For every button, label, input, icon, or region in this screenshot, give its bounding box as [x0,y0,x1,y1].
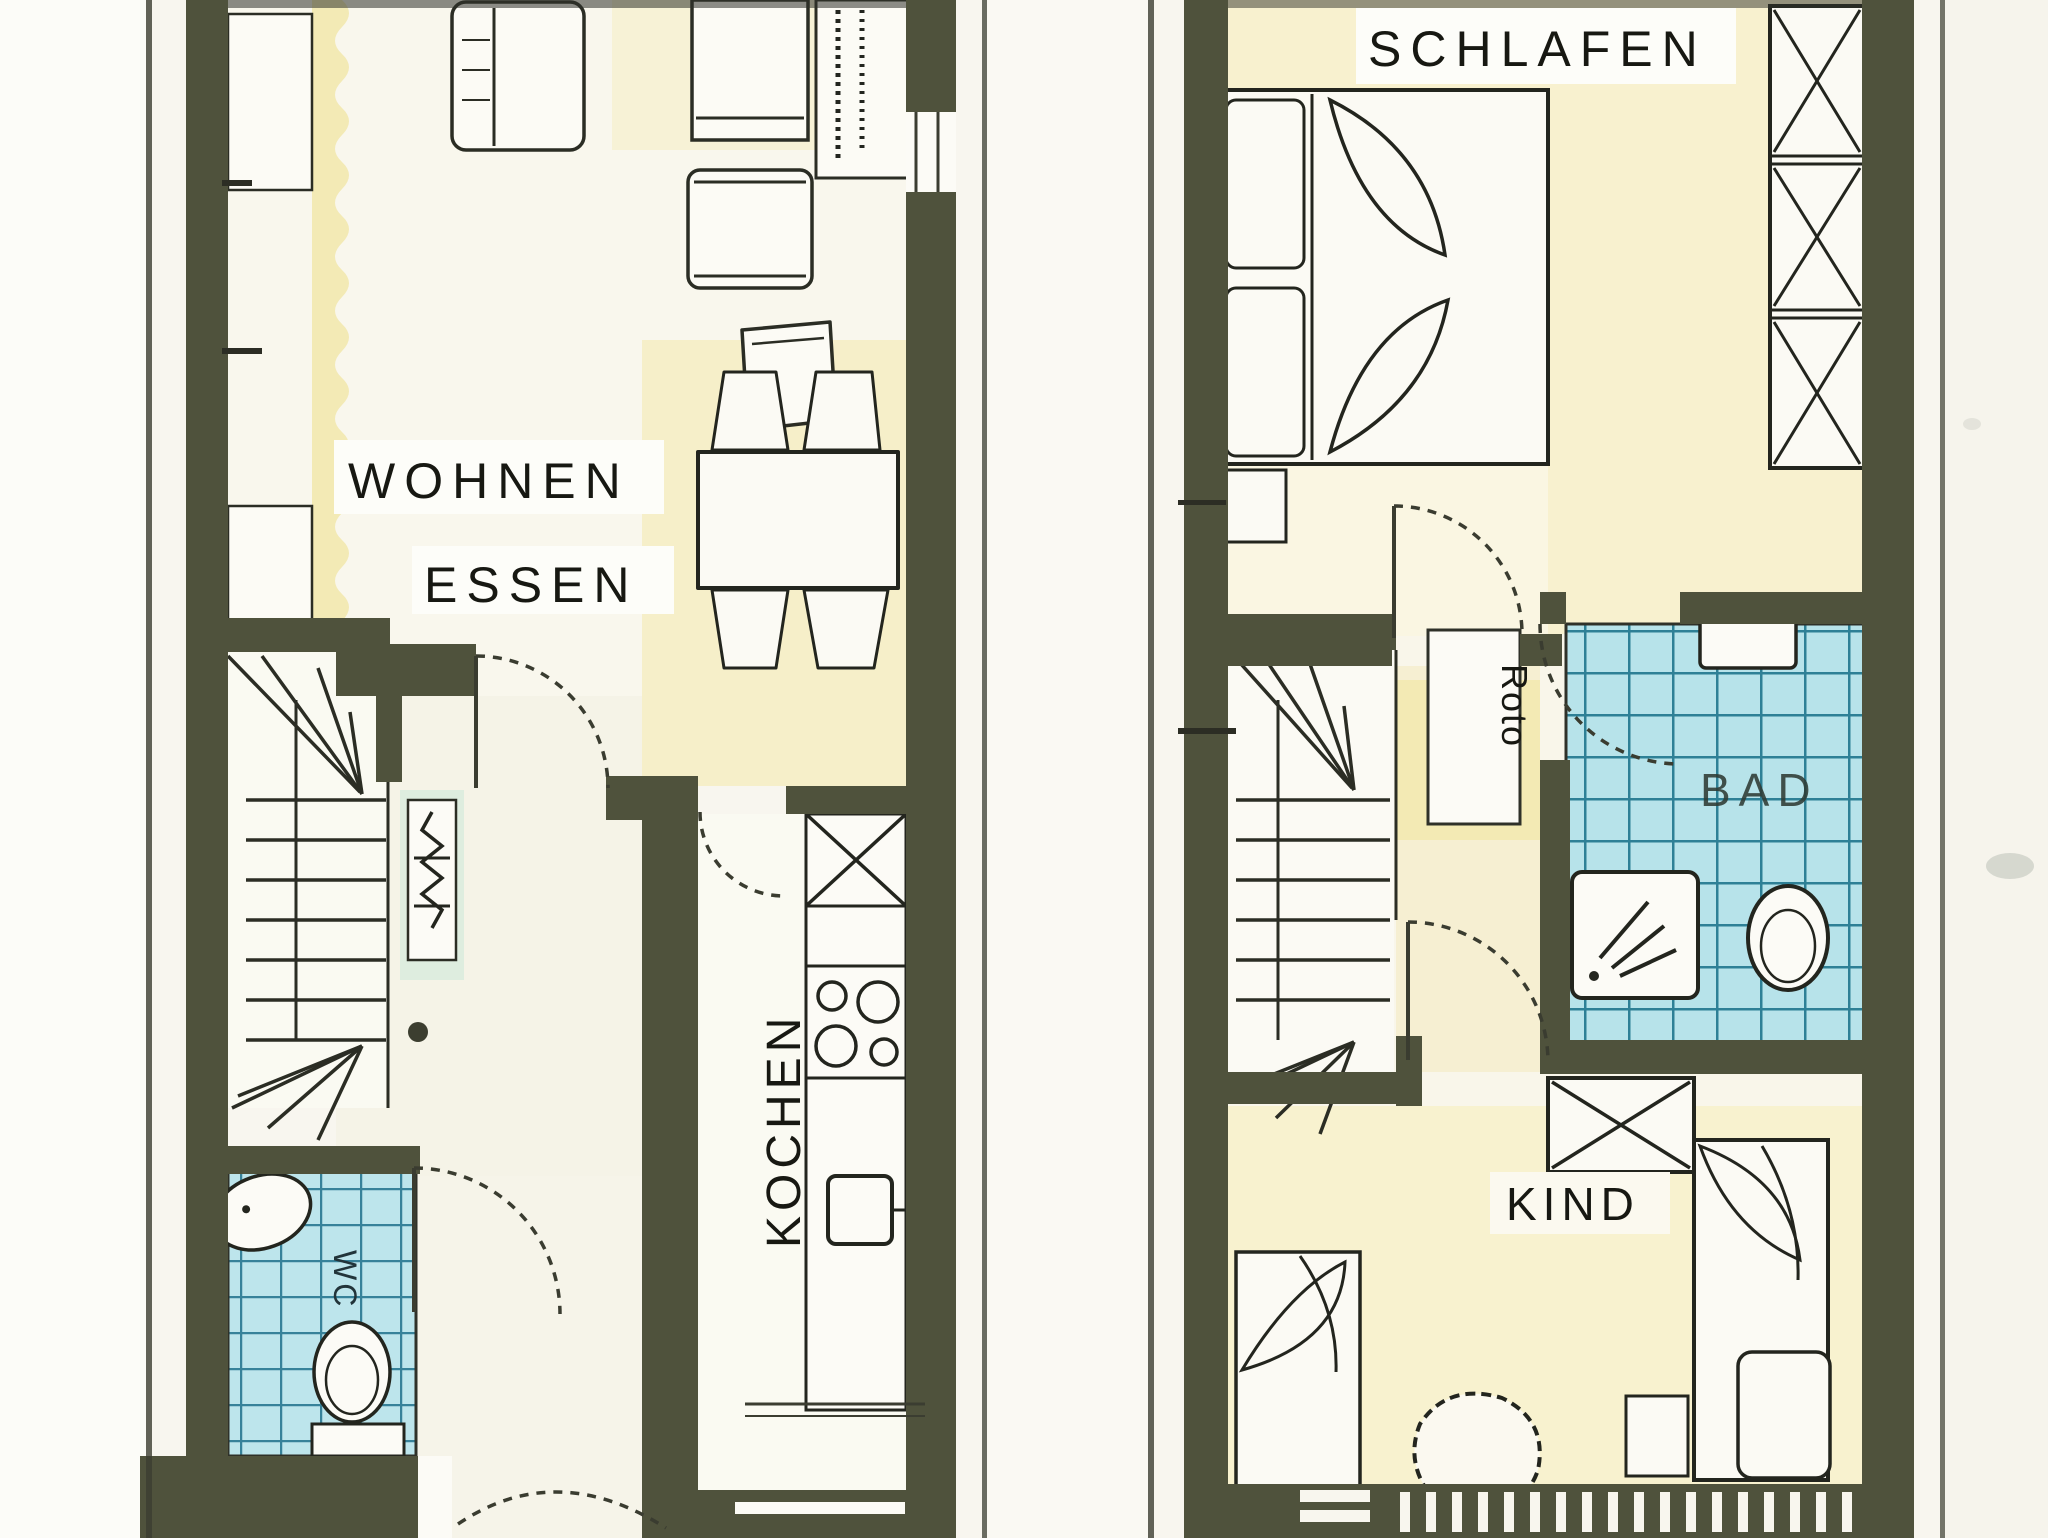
roto-roof-window-box: Roto [1428,630,1535,824]
pillow-symbol [1226,288,1304,456]
hob-symbol [806,966,906,1078]
dining-chair-symbol [804,590,888,668]
tall-cabinet-symbol [816,0,908,178]
floorplan-drawing: WOHNEN ESSEN KOCHEN WC [0,0,2048,1538]
toilet-symbol [1748,886,1828,990]
room-label-dining: ESSEN [424,557,639,613]
stairs-ground-floor [224,652,388,1140]
roto-annotation: Roto [1494,664,1535,748]
shower-symbol [1572,872,1698,998]
pillow-symbol [1226,100,1304,268]
double-bed-symbol [1216,90,1548,464]
window-symbol [906,112,956,192]
single-bed-symbol [1236,1252,1360,1488]
room-label-bath: BAD [1700,764,1819,816]
wall-cabinet-symbol [228,14,312,190]
dining-chair-symbol [712,590,788,668]
nightstand-symbol [1626,1396,1688,1476]
room-label-wc: WC [327,1250,363,1309]
wardrobe-symbol [1770,6,1864,468]
room-label-bedroom: SCHLAFEN [1368,21,1707,77]
door-jamb [418,1456,452,1538]
blanket-symbol [1738,1352,1830,1478]
cistern-symbol [312,1424,404,1456]
stairs-upper-floor [1228,650,1396,1134]
wardrobe-symbol [1548,1078,1694,1172]
dining-chair-symbol [804,372,880,450]
armchair-symbol [452,2,584,150]
single-bed-symbol [1694,1140,1830,1480]
scan-speck [1963,418,1981,430]
floorplan-scan-sheet: WOHNEN ESSEN KOCHEN WC [0,0,2048,1538]
window-symbol [735,1502,905,1514]
room-label-child: KIND [1506,1178,1640,1230]
room-label-kitchen: KOCHEN [758,1013,811,1248]
scan-smudge [1986,853,2034,879]
armchair-symbol [692,0,808,140]
railing-symbol [1228,1484,1862,1538]
dining-table-symbol [698,452,898,588]
plan-upper-floor: Roto [1148,0,1945,1538]
plan-ground-floor: WOHNEN ESSEN KOCHEN WC [140,0,987,1538]
kitchen-counter-symbol [806,814,908,1410]
room-label-living: WOHNEN [348,453,630,509]
dining-chair-symbol [712,372,788,450]
armchair-symbol [688,170,812,288]
